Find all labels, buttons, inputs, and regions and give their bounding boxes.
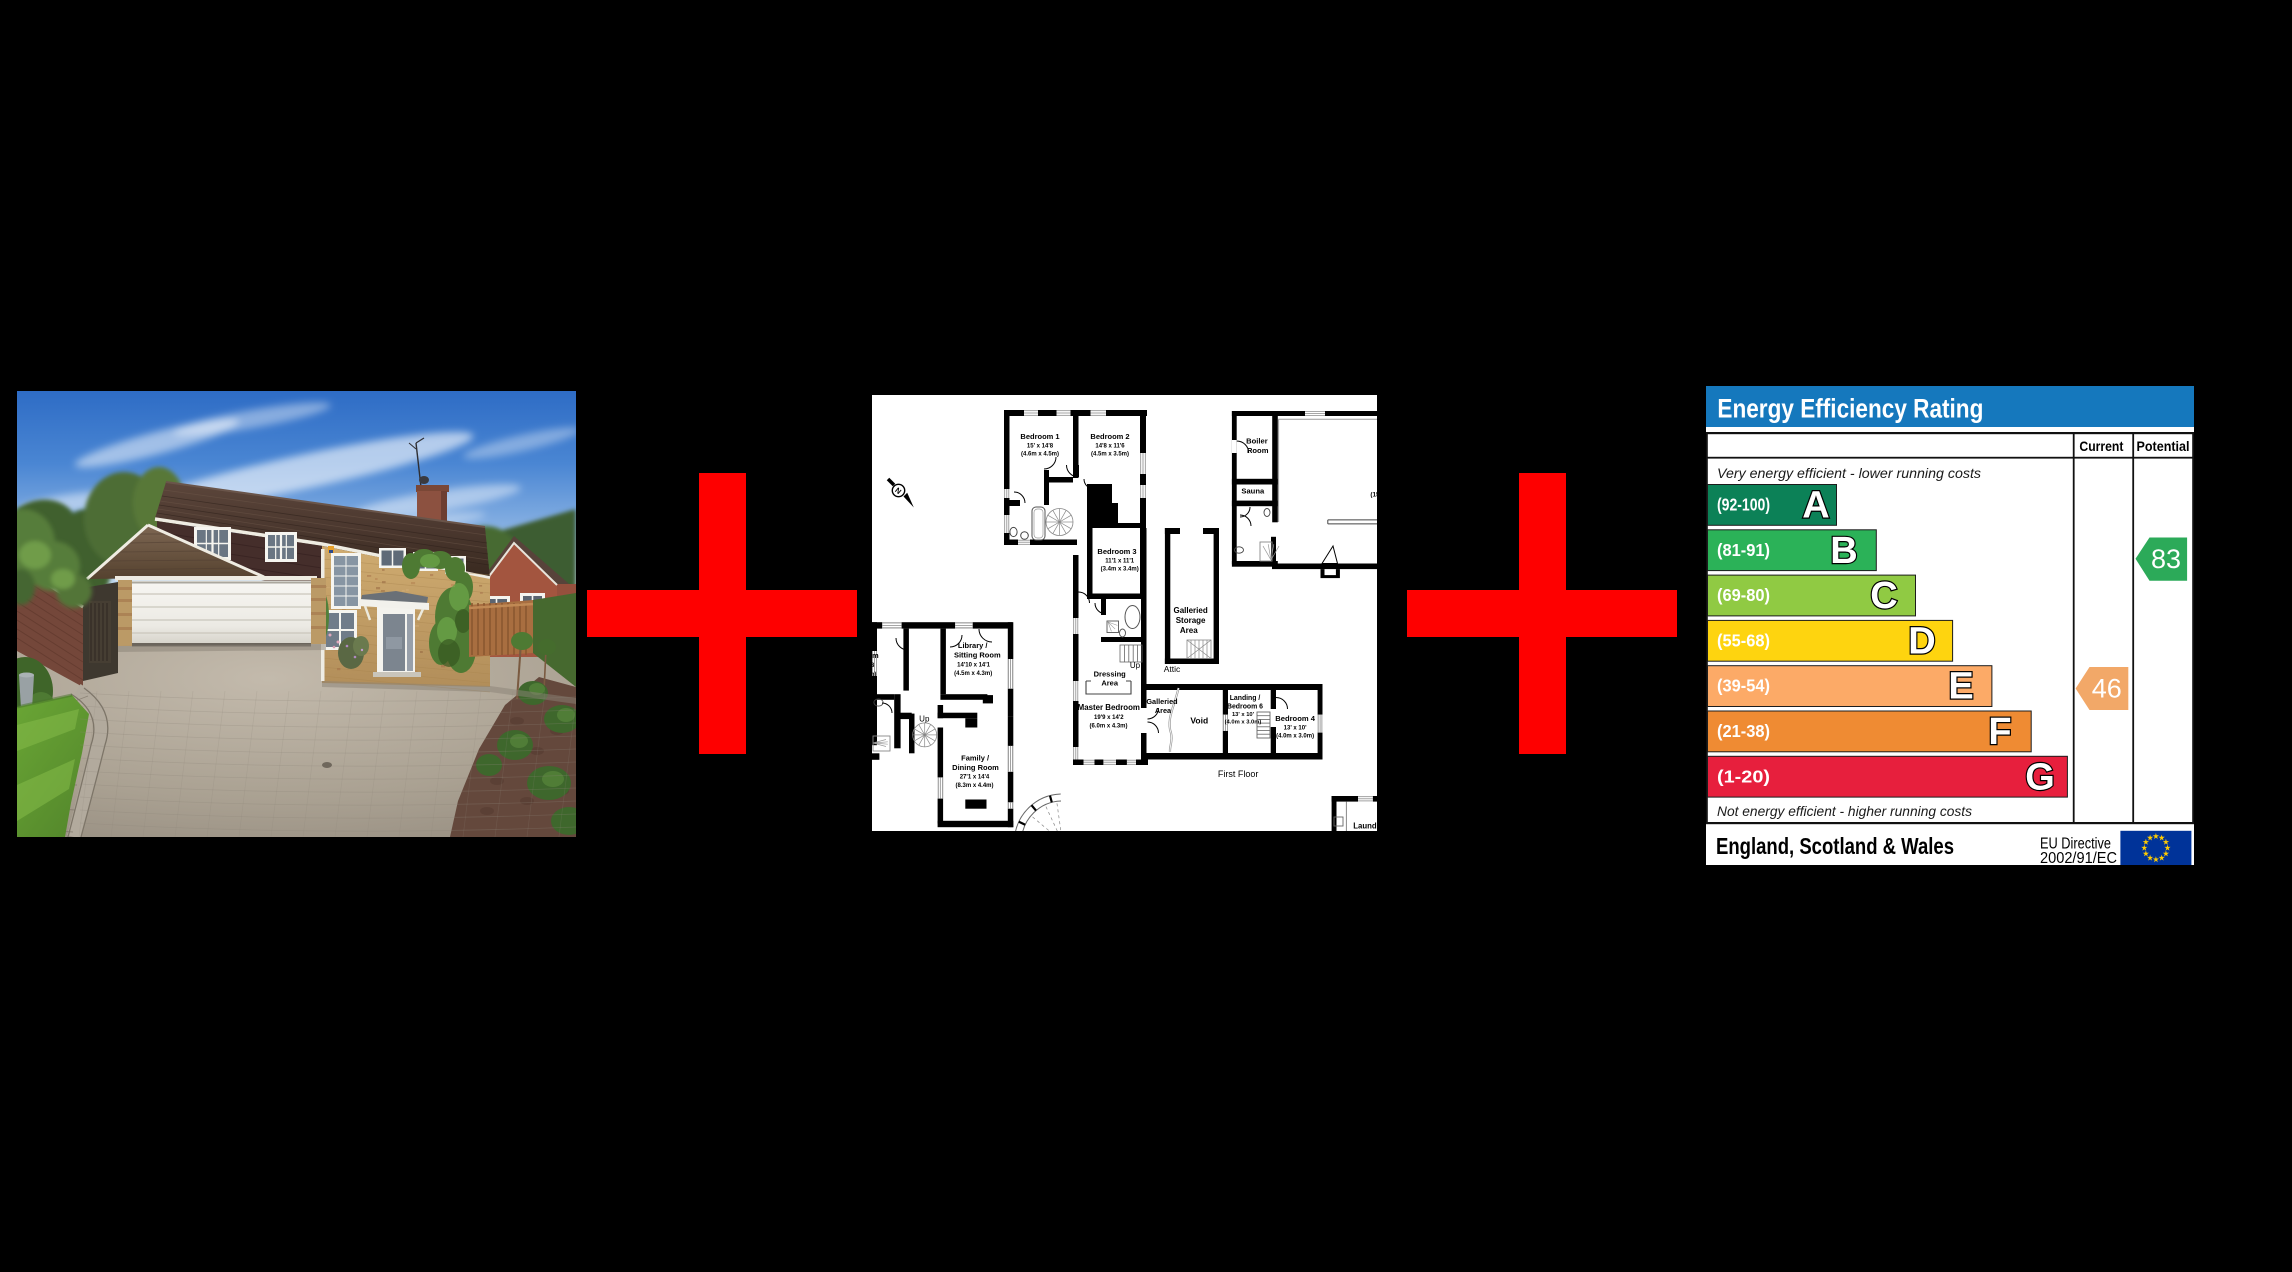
svg-text:Landing /: Landing / (1230, 695, 1261, 702)
svg-text:(92-100): (92-100) (1717, 495, 1770, 515)
svg-text:(4.0m x 3.0m): (4.0m x 3.0m) (1276, 734, 1314, 740)
svg-text:Area: Area (1155, 706, 1172, 715)
svg-text:First Floor: First Floor (1218, 769, 1259, 779)
svg-text:Galleried: Galleried (1146, 697, 1177, 706)
svg-text:E: E (1948, 666, 1973, 708)
svg-text:Room: Room (872, 651, 879, 660)
svg-text:F: F (1988, 711, 2011, 753)
svg-text:(8.3m x 4.4m): (8.3m x 4.4m) (955, 783, 993, 789)
svg-text:(55-68): (55-68) (1717, 630, 1770, 650)
svg-text:Bedroom 2: Bedroom 2 (1090, 432, 1129, 441)
svg-text:(81-91): (81-91) (1717, 540, 1770, 560)
svg-text:Room: Room (1247, 446, 1269, 455)
svg-text:14'8 x 11'6: 14'8 x 11'6 (1095, 444, 1125, 450)
svg-text:C: C (1870, 575, 1897, 617)
svg-text:Storage: Storage (1176, 616, 1206, 625)
svg-text:Laund: Laund (1353, 822, 1377, 831)
svg-text:14'10 x 14'1: 14'10 x 14'1 (957, 663, 991, 669)
svg-text:Library /: Library / (958, 641, 989, 650)
svg-text:13' x 10': 13' x 10' (1232, 712, 1255, 718)
svg-text:Sitting Room: Sitting Room (954, 651, 1001, 660)
svg-text:13' x 10': 13' x 10' (1284, 726, 1307, 732)
svg-text:Boiler: Boiler (1246, 437, 1268, 446)
svg-text:Galleried: Galleried (1173, 606, 1207, 615)
svg-text:Area: Area (1101, 679, 1119, 688)
svg-text:Bedroom 1: Bedroom 1 (1020, 432, 1059, 441)
svg-text:2002/91/EC: 2002/91/EC (2040, 850, 2117, 865)
svg-text:Bedroom 3: Bedroom 3 (1097, 547, 1136, 556)
svg-text:(4.5m x 3.5m): (4.5m x 3.5m) (1091, 452, 1129, 458)
svg-text:(4.5m x 4.3m): (4.5m x 4.3m) (954, 671, 992, 677)
svg-text:m): m) (872, 672, 876, 678)
svg-text:(4.0m x 3.0m): (4.0m x 3.0m) (1225, 720, 1262, 726)
svg-text:Sauna: Sauna (1241, 487, 1265, 496)
svg-text:(6.0m x 4.3m): (6.0m x 4.3m) (1089, 724, 1127, 730)
svg-text:G: G (2025, 756, 2055, 798)
svg-text:D: D (1908, 620, 1935, 662)
svg-text:(4.6m x 4.5m): (4.6m x 4.5m) (1021, 452, 1059, 458)
svg-text:Current: Current (2079, 438, 2123, 454)
svg-text:(21-38): (21-38) (1717, 721, 1770, 741)
svg-text:Attic: Attic (1164, 664, 1181, 674)
svg-text:Dressing: Dressing (1094, 670, 1127, 679)
svg-text:England, Scotland & Wales: England, Scotland & Wales (1716, 833, 1954, 859)
svg-text:Family /: Family / (961, 754, 990, 763)
svg-text:(1-20): (1-20) (1717, 766, 1770, 786)
svg-text:Very energy efficient - lower: Very energy efficient - lower running co… (1717, 465, 1981, 481)
svg-text:Area: Area (1180, 626, 1198, 635)
svg-text:11'1 x 11'1: 11'1 x 11'1 (1105, 559, 1135, 565)
svg-text:Up: Up (919, 715, 930, 724)
svg-text:27'1 x 14'4: 27'1 x 14'4 (960, 775, 990, 781)
svg-text:B: B (1830, 530, 1857, 572)
svg-text:83: 83 (2151, 544, 2181, 574)
svg-text:A: A (1802, 485, 1829, 527)
svg-text:Bedroom 6: Bedroom 6 (1227, 704, 1263, 711)
svg-text:Dining Room: Dining Room (952, 763, 999, 772)
svg-text:15' x 14'8: 15' x 14'8 (1027, 444, 1054, 450)
svg-text:(69-80): (69-80) (1717, 585, 1770, 605)
svg-text:46: 46 (2092, 674, 2122, 704)
svg-text:Not energy efficient - higher: Not energy efficient - higher running co… (1717, 803, 1972, 819)
svg-text:Master Bedroom: Master Bedroom (1078, 703, 1140, 712)
svg-text:19'9 x 14'2: 19'9 x 14'2 (1094, 715, 1124, 721)
svg-text:(39-54): (39-54) (1717, 676, 1770, 696)
svg-text:Up: Up (1130, 661, 1141, 670)
svg-text:Potential: Potential (2137, 438, 2190, 454)
svg-text:Void: Void (1190, 716, 1208, 726)
svg-text:(3.4m x 3.4m): (3.4m x 3.4m) (1101, 567, 1139, 573)
svg-text:Energy Efficiency Rating: Energy Efficiency Rating (1717, 394, 1983, 424)
svg-text:(15: (15 (1370, 492, 1377, 499)
svg-text:Bedroom 4: Bedroom 4 (1275, 714, 1315, 723)
